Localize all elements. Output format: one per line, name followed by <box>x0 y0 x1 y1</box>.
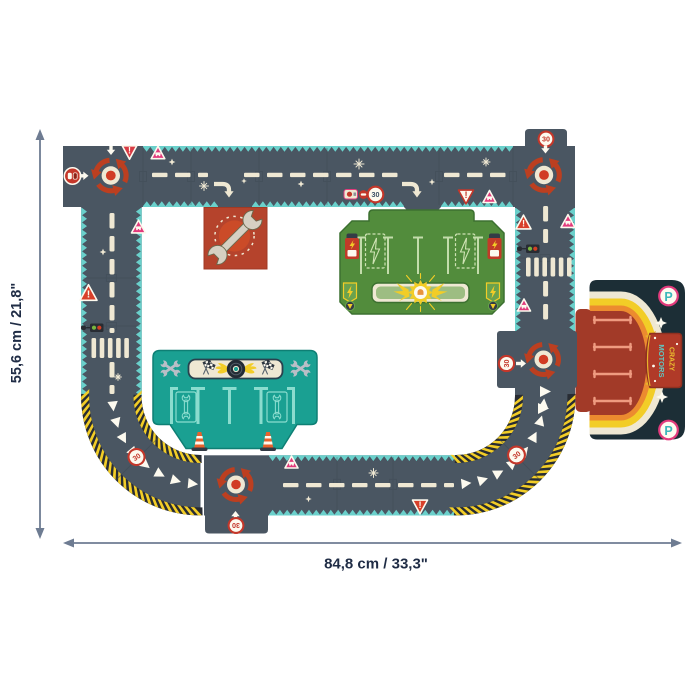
svg-text:P: P <box>664 424 672 438</box>
svg-text:!: ! <box>87 289 91 301</box>
svg-text:55,6 cm / 21,8": 55,6 cm / 21,8" <box>9 283 25 383</box>
svg-text:P: P <box>664 290 672 304</box>
svg-text:30: 30 <box>372 190 380 199</box>
svg-text:!: ! <box>464 190 467 200</box>
svg-text:CRAZY: CRAZY <box>668 347 675 371</box>
svg-text:84,8 cm / 33,3": 84,8 cm / 33,3" <box>324 556 428 573</box>
svg-text:!: ! <box>522 218 525 228</box>
svg-text:30: 30 <box>232 521 240 530</box>
svg-text:!: ! <box>418 500 421 510</box>
svg-text:MOTORS: MOTORS <box>657 344 666 377</box>
svg-text:30: 30 <box>502 360 511 368</box>
svg-text:30: 30 <box>542 135 550 144</box>
svg-text:!: ! <box>128 146 131 156</box>
